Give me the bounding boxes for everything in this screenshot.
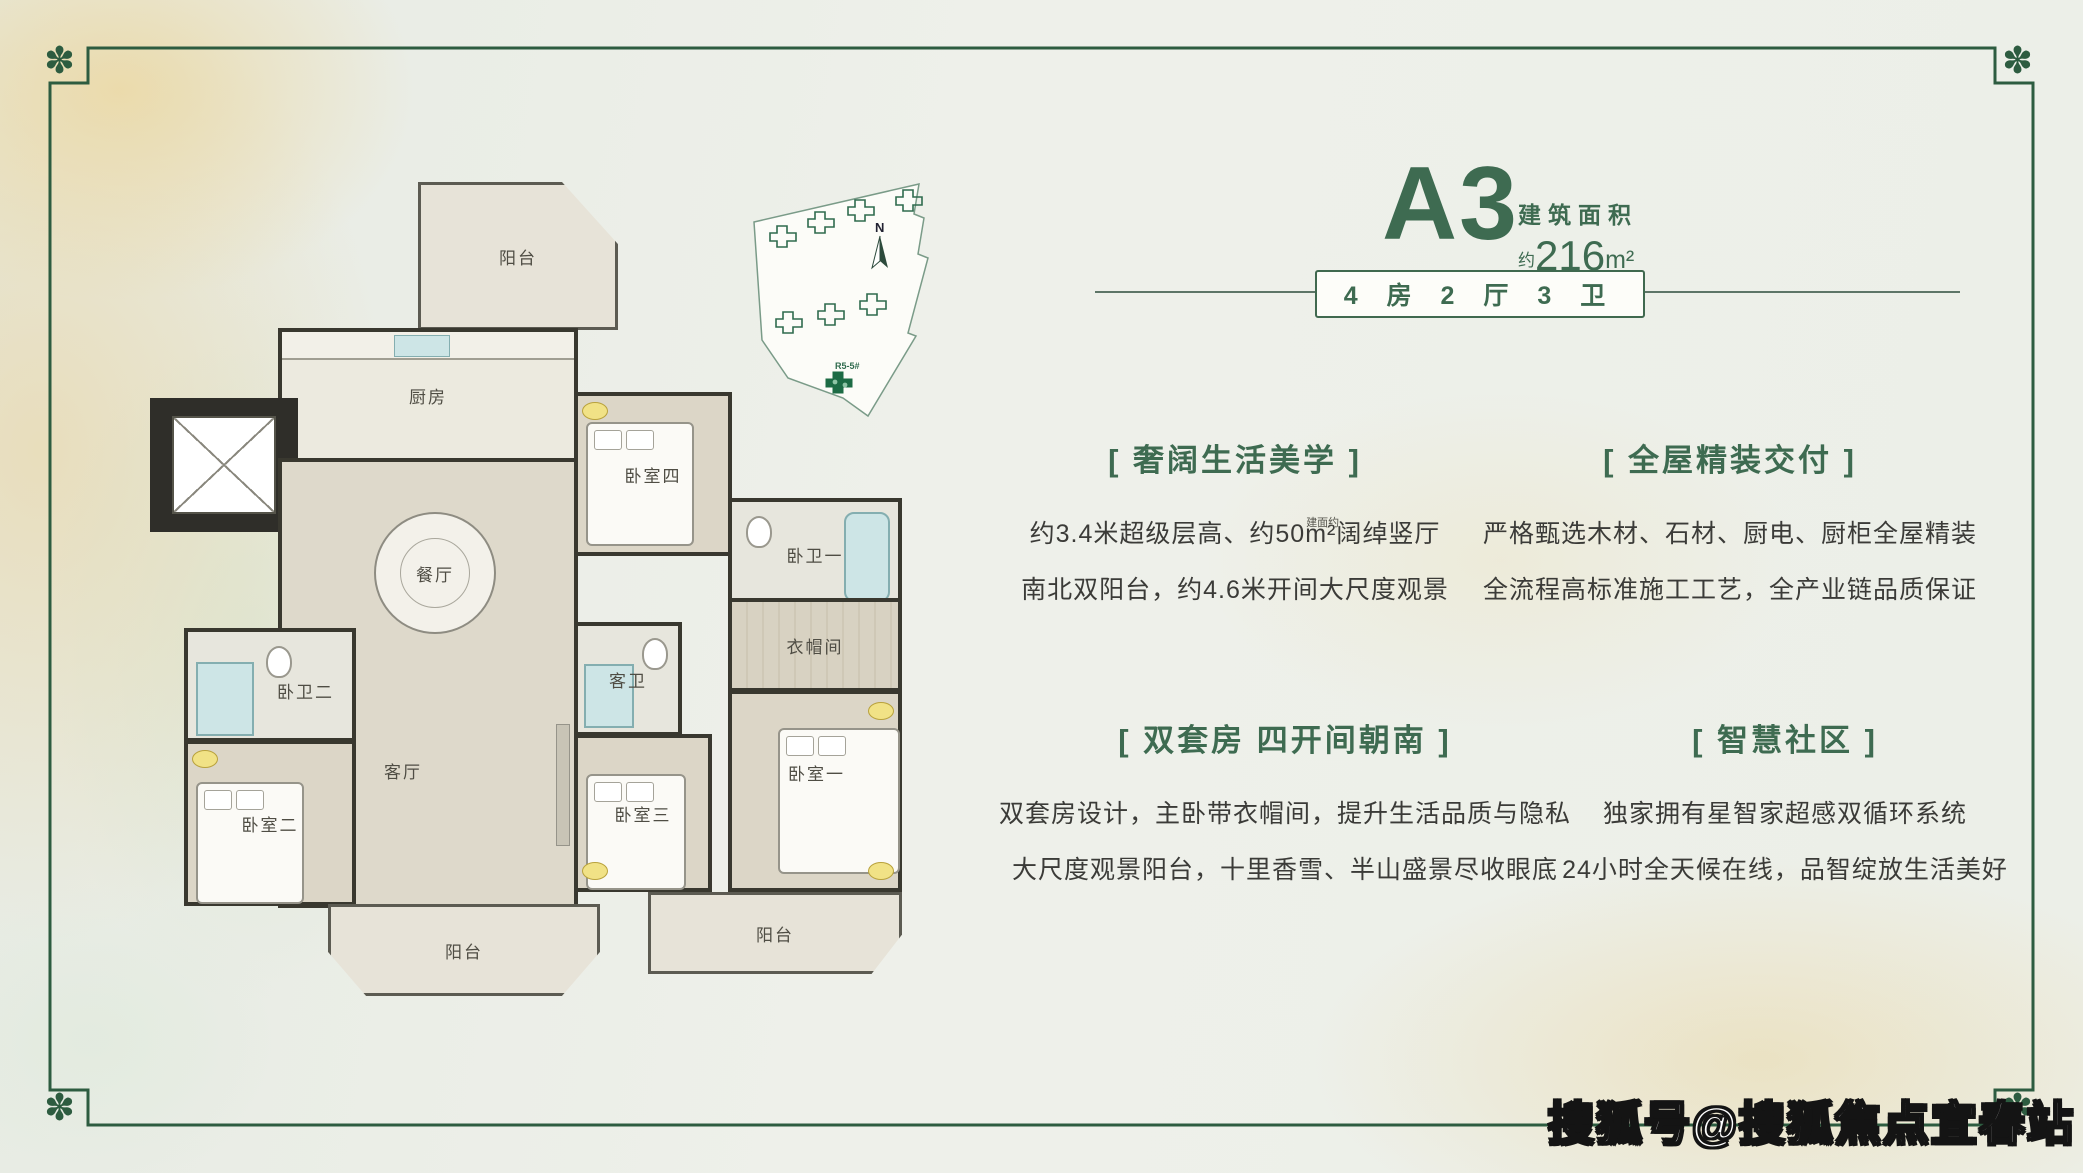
poster-page: ✽ ✽ ✽ ✽ 阳台 厨房 餐厅 客厅 卧室四 bbox=[0, 0, 2083, 1173]
elevator-shaft bbox=[150, 398, 298, 532]
corner-flower-icon: ✽ bbox=[44, 42, 75, 79]
kitchen-sink bbox=[394, 335, 450, 357]
plant-accent bbox=[868, 702, 894, 720]
area-unit-with-note: 建面约m² bbox=[1305, 506, 1336, 562]
room-label-dining: 餐厅 bbox=[416, 561, 454, 586]
room-label-balcony-bottom-left: 阳台 bbox=[445, 938, 483, 963]
north-label: N bbox=[875, 220, 884, 235]
toilet bbox=[746, 516, 772, 548]
site-building-label: R5-5# bbox=[835, 361, 860, 371]
room-bedroom-4: 卧室四 bbox=[574, 392, 732, 556]
room-kitchen: 厨房 bbox=[278, 328, 578, 462]
area-label: 建筑面积 bbox=[1518, 196, 1638, 230]
room-balcony-top: 阳台 bbox=[418, 182, 618, 330]
room-label-suite-bath-2: 卧卫二 bbox=[277, 678, 334, 703]
room-balcony-bottom-left: 阳台 bbox=[328, 904, 600, 996]
feature-text: 约3.4米超级层高、约50 bbox=[1030, 520, 1306, 548]
room-label-bedroom-3: 卧室三 bbox=[615, 801, 672, 826]
dining-table: 餐厅 bbox=[374, 512, 496, 634]
room-label-bedroom-1: 卧室一 bbox=[788, 760, 845, 785]
feature-line-2: 全流程高标准施工工艺，全产业链品质保证 bbox=[1440, 562, 2020, 618]
room-label-kitchen: 厨房 bbox=[409, 383, 447, 408]
feature-title: [ 全屋精装交付 ] bbox=[1440, 435, 2020, 480]
feature-title: [ 双套房 四开间朝南 ] bbox=[995, 715, 1575, 760]
area-approx: 约 bbox=[1518, 246, 1535, 271]
bed bbox=[778, 728, 900, 874]
layout-spec-box: 4 房 2 厅 3 卫 bbox=[1315, 270, 1645, 318]
feature-line-1: 独家拥有星智家超感双循环系统 bbox=[1495, 786, 2075, 842]
feature-full-decoration: [ 全屋精装交付 ] 严格甄选木材、石材、厨电、厨柜全屋精装 全流程高标准施工工… bbox=[1440, 435, 2020, 618]
feature-line-2: 24小时全天候在线，品智绽放生活美好 bbox=[1495, 842, 2075, 898]
corner-flower-icon: ✽ bbox=[2002, 42, 2033, 79]
feature-title: [ 智慧社区 ] bbox=[1495, 715, 2075, 760]
room-suite-bath-1: 卧卫一 bbox=[728, 498, 902, 610]
room-bedroom-3: 卧室三 bbox=[574, 734, 712, 892]
room-label-balcony-top: 阳台 bbox=[499, 244, 537, 269]
feature-line-1: 约3.4米超级层高、约50建面约m²阔绰竖厅 bbox=[945, 506, 1525, 562]
feature-text: 阔绰竖厅 bbox=[1336, 520, 1440, 548]
site-plan: R5-5# N bbox=[748, 128, 973, 418]
elevator-icon bbox=[172, 416, 276, 514]
bed bbox=[196, 782, 304, 904]
plant-accent bbox=[582, 402, 608, 420]
feature-double-suite: [ 双套房 四开间朝南 ] 双套房设计，主卧带衣帽间，提升生活品质与隐私 大尺度… bbox=[995, 715, 1575, 898]
room-label-bedroom-4: 卧室四 bbox=[625, 462, 682, 487]
room-label-bedroom-2: 卧室二 bbox=[242, 811, 299, 836]
bathtub bbox=[844, 512, 890, 602]
room-label-closet: 衣帽间 bbox=[787, 633, 844, 658]
corner-flower-icon: ✽ bbox=[44, 1089, 75, 1126]
room-label-balcony-bottom-right: 阳台 bbox=[756, 921, 794, 946]
unit-meta: 建筑面积 约 216 m² bbox=[1518, 196, 1638, 276]
feature-line-1: 双套房设计，主卧带衣帽间，提升生活品质与隐私 bbox=[995, 786, 1575, 842]
room-label-suite-bath-1: 卧卫一 bbox=[787, 542, 844, 567]
room-walk-in-closet: 衣帽间 bbox=[728, 598, 902, 692]
shower bbox=[196, 662, 254, 736]
room-suite-bath-2: 卧卫二 bbox=[184, 628, 356, 742]
plant-accent bbox=[868, 862, 894, 880]
tv-cabinet bbox=[556, 724, 570, 846]
toilet bbox=[266, 646, 292, 678]
feature-line-2: 南北双阳台，约4.6米开间大尺度观景 bbox=[945, 562, 1525, 618]
feature-title: [ 奢阔生活美学 ] bbox=[945, 435, 1525, 480]
feature-line-1: 严格甄选木材、石材、厨电、厨柜全屋精装 bbox=[1440, 506, 2020, 562]
plant-accent bbox=[192, 750, 218, 768]
room-guest-bath: 客卫 bbox=[574, 622, 682, 736]
unit-code: A3 bbox=[1382, 150, 1519, 259]
feature-smart-community: [ 智慧社区 ] 独家拥有星智家超感双循环系统 24小时全天候在线，品智绽放生活… bbox=[1495, 715, 2075, 898]
room-balcony-bottom-right: 阳台 bbox=[648, 892, 902, 974]
room-label-living: 客厅 bbox=[384, 758, 422, 783]
feature-luxury-living: [ 奢阔生活美学 ] 约3.4米超级层高、约50建面约m²阔绰竖厅 南北双阳台，… bbox=[945, 435, 1525, 618]
room-bedroom-1: 卧室一 bbox=[728, 690, 902, 892]
watermark: 搜狐号@搜狐焦点宜春站 bbox=[1548, 1088, 2075, 1154]
plant-accent bbox=[582, 862, 608, 880]
feature-line-2: 大尺度观景阳台，十里香雪、半山盛景尽收眼底 bbox=[995, 842, 1575, 898]
area-note-sup: 建面约 bbox=[1306, 495, 1339, 551]
room-bedroom-2: 卧室二 bbox=[184, 740, 356, 906]
room-label-guest-bath: 客卫 bbox=[609, 667, 647, 692]
toilet bbox=[642, 638, 668, 670]
